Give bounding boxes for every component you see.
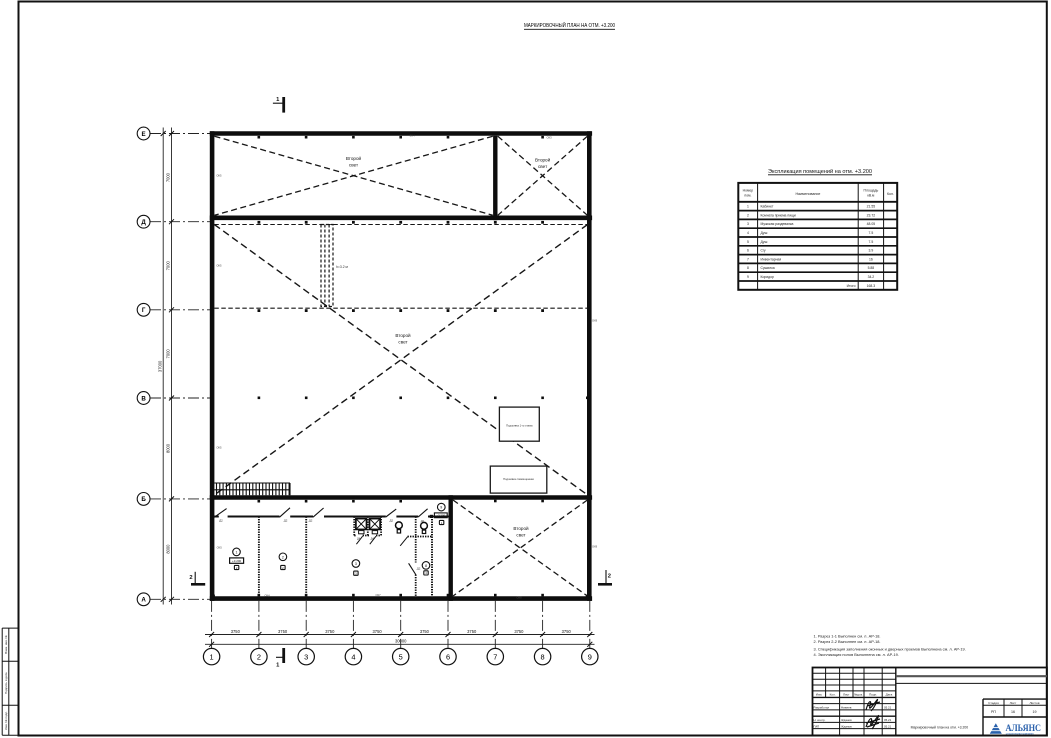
svg-text:Нижнев: Нижнев <box>841 705 852 709</box>
svg-text:Д2: Д2 <box>284 519 288 523</box>
svg-text:37000: 37000 <box>157 360 162 372</box>
svg-text:8: 8 <box>541 652 545 661</box>
svg-text:ОК4: ОК4 <box>410 134 416 138</box>
svg-text:3750: 3750 <box>467 629 477 634</box>
svg-text:Жданов: Жданов <box>841 724 852 728</box>
svg-text:h=3.2 м: h=3.2 м <box>336 265 349 269</box>
svg-text:Стадия: Стадия <box>988 701 999 705</box>
svg-text:ОК9: ОК9 <box>592 319 598 323</box>
svg-text:Второй: Второй <box>395 332 411 338</box>
svg-text:8: 8 <box>425 564 427 568</box>
svg-text:7.5: 7.5 <box>869 231 874 235</box>
svg-text:1: 1 <box>747 205 749 209</box>
svg-text:7000: 7000 <box>166 172 171 182</box>
svg-text:7: 7 <box>493 652 497 661</box>
svg-text:Второй: Второй <box>535 157 551 163</box>
svg-text:1: 1 <box>210 652 214 661</box>
svg-text:+3.200: +3.200 <box>436 514 445 518</box>
svg-text:16: 16 <box>869 257 873 261</box>
svg-text:Кол.: Кол. <box>830 692 836 696</box>
svg-text:2. Разрез 2-2 Выполнен см. л.: 2. Разрез 2-2 Выполнен см. л. АР-18. <box>814 639 881 644</box>
svg-text:Лист: Лист <box>843 692 850 696</box>
svg-text:Инв. № подл.: Инв. № подл. <box>4 711 8 730</box>
svg-text:9: 9 <box>440 506 442 510</box>
svg-text:3750: 3750 <box>278 629 288 634</box>
svg-text:Н. контр.: Н. контр. <box>814 718 826 722</box>
svg-text:3750: 3750 <box>325 629 335 634</box>
svg-text:Площадь: Площадь <box>864 189 879 193</box>
svg-text:8000: 8000 <box>166 443 171 453</box>
svg-text:МАРКИРОВОЧНЫЙ ПЛАН НА ОТМ. +3.: МАРКИРОВОЧНЫЙ ПЛАН НА ОТМ. +3.200 <box>524 21 615 29</box>
svg-text:ОК5: ОК5 <box>216 446 222 450</box>
svg-text:С/у: С/у <box>761 249 766 253</box>
svg-text:ОК9: ОК9 <box>592 545 598 549</box>
svg-text:Душ: Душ <box>761 240 768 244</box>
svg-text:№док.: №док. <box>854 692 863 696</box>
svg-text:пом.: пом. <box>744 193 751 197</box>
svg-text:3: 3 <box>355 562 357 566</box>
svg-text:Д2: Д2 <box>219 519 223 523</box>
svg-text:Листов: Листов <box>1029 701 1039 705</box>
svg-text:9: 9 <box>747 275 749 279</box>
svg-text:РП: РП <box>991 710 996 714</box>
svg-text:строительная компания: строительная компания <box>1006 732 1034 735</box>
svg-text:А: А <box>141 597 146 604</box>
svg-text:3750: 3750 <box>420 629 430 634</box>
svg-text:5: 5 <box>747 240 749 244</box>
svg-text:ОК7: ОК7 <box>376 593 382 597</box>
svg-text:48.05: 48.05 <box>867 222 876 226</box>
svg-text:34.2: 34.2 <box>868 275 875 279</box>
svg-text:1. Разрез 1-1 Выполнен см. л.: 1. Разрез 1-1 Выполнен см. л. АР-18. <box>814 634 881 639</box>
svg-text:Изм.: Изм. <box>816 692 823 696</box>
svg-text:7000: 7000 <box>166 349 171 359</box>
svg-text:свет: свет <box>538 164 548 169</box>
svg-text:ОК5: ОК5 <box>217 545 223 549</box>
svg-text:Б: Б <box>141 496 146 503</box>
svg-text:8000: 8000 <box>166 544 171 554</box>
svg-text:ОК5: ОК5 <box>216 264 222 268</box>
svg-text:Маркировочный план на отм. +3.: Маркировочный план на отм. +3.200 <box>911 726 969 730</box>
svg-text:Дата: Дата <box>886 692 893 696</box>
svg-text:05.21: 05.21 <box>884 724 892 728</box>
svg-text:Д: Д <box>141 219 146 226</box>
svg-text:Подшивка 1-го этажа: Подшивка 1-го этажа <box>506 423 533 427</box>
svg-text:4: 4 <box>747 231 749 235</box>
svg-text:Подпись и дата: Подпись и дата <box>4 672 8 694</box>
svg-text:8: 8 <box>747 266 749 270</box>
svg-text:3.9: 3.9 <box>869 249 874 253</box>
svg-text:ОК8: ОК8 <box>517 596 523 600</box>
svg-text:7000: 7000 <box>166 261 171 271</box>
svg-text:3: 3 <box>747 222 749 226</box>
svg-text:9: 9 <box>588 652 592 661</box>
svg-text:свет: свет <box>398 340 408 345</box>
svg-text:Е: Е <box>142 131 146 138</box>
svg-text:Кабинет: Кабинет <box>761 205 774 209</box>
svg-text:2: 2 <box>282 555 284 559</box>
svg-text:Инвентарная: Инвентарная <box>761 257 782 261</box>
svg-text:7.5: 7.5 <box>869 240 874 244</box>
svg-text:Номер: Номер <box>743 189 754 193</box>
svg-text:4: 4 <box>351 652 355 661</box>
svg-text:23.72: 23.72 <box>867 213 876 217</box>
svg-text:В: В <box>141 395 146 402</box>
svg-text:3750: 3750 <box>231 629 241 634</box>
svg-text:2: 2 <box>189 575 192 581</box>
svg-text:свет: свет <box>349 163 359 168</box>
svg-text:6: 6 <box>747 249 749 253</box>
svg-text:Лист: Лист <box>1010 701 1017 705</box>
svg-text:кВ.м: кВ.м <box>867 193 875 197</box>
svg-text:3750: 3750 <box>373 629 383 634</box>
svg-text:05.21: 05.21 <box>884 718 892 722</box>
svg-text:Взам. инв. №: Взам. инв. № <box>4 635 8 654</box>
svg-text:Д4: Д4 <box>371 537 375 541</box>
svg-text:4. Экспликация полов Выполнена: 4. Экспликация полов Выполнена см. л. АР… <box>814 652 899 657</box>
svg-text:Г: Г <box>142 307 146 314</box>
svg-text:Экспликация помещений на отм.: Экспликация помещений на отм. +3.200 <box>768 168 872 175</box>
svg-text:Душ: Душ <box>761 231 768 235</box>
svg-text:19: 19 <box>1033 710 1037 714</box>
svg-text:1: 1 <box>236 550 238 554</box>
svg-text:Подшивка совмещенная: Подшивка совмещенная <box>503 477 534 481</box>
svg-text:Комната приема пищи: Комната приема пищи <box>761 213 796 217</box>
svg-text:6: 6 <box>446 652 450 661</box>
svg-text:Сушилка: Сушилка <box>761 266 775 270</box>
svg-text:05.21: 05.21 <box>884 705 892 709</box>
svg-text:Коридор: Коридор <box>761 275 775 279</box>
svg-text:ОК3: ОК3 <box>547 136 553 140</box>
svg-text:30000: 30000 <box>395 639 407 644</box>
svg-text:Кол.: Кол. <box>887 192 894 196</box>
svg-text:Д2: Д2 <box>417 566 421 570</box>
svg-text:2: 2 <box>608 574 611 580</box>
svg-text:Жданов: Жданов <box>841 718 852 722</box>
svg-text:Разработал: Разработал <box>814 705 830 709</box>
svg-text:3750: 3750 <box>514 629 524 634</box>
svg-text:Д4: Д4 <box>357 537 361 541</box>
svg-text:5: 5 <box>399 652 403 661</box>
svg-text:5.88: 5.88 <box>868 266 875 270</box>
svg-text:ГИП: ГИП <box>814 724 820 728</box>
svg-text:Мужская раздевалка: Мужская раздевалка <box>761 222 794 226</box>
svg-text:+3.200: +3.200 <box>232 559 242 563</box>
svg-text:168.3: 168.3 <box>867 284 876 288</box>
svg-text:ОК4: ОК4 <box>265 593 271 597</box>
svg-text:16: 16 <box>1011 710 1015 714</box>
svg-text:Подп.: Подп. <box>869 692 877 696</box>
svg-text:2: 2 <box>257 652 261 661</box>
svg-text:Наименование: Наименование <box>795 192 820 196</box>
svg-text:2: 2 <box>747 213 749 217</box>
svg-text:3. Спецификация заполнения око: 3. Спецификация заполнения оконных и две… <box>814 647 966 652</box>
svg-text:Второй: Второй <box>513 525 529 531</box>
svg-text:3: 3 <box>304 652 308 661</box>
svg-text:ОК5: ОК5 <box>216 174 222 178</box>
svg-text:3750: 3750 <box>562 629 572 634</box>
svg-text:Д2: Д2 <box>390 519 394 523</box>
svg-text:свет: свет <box>516 533 526 538</box>
svg-text:21.55: 21.55 <box>867 205 876 209</box>
svg-text:Д2: Д2 <box>309 519 313 523</box>
svg-text:Итого: Итого <box>847 284 856 288</box>
svg-text:7: 7 <box>747 257 749 261</box>
svg-text:Второй: Второй <box>346 155 362 161</box>
